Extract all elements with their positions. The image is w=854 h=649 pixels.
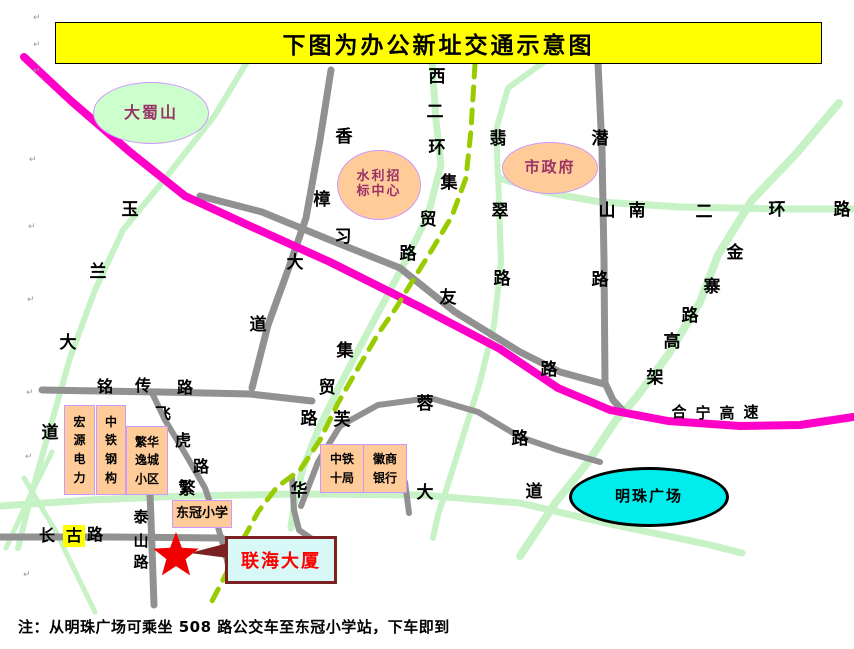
traffic-map: 香樟大道西二环集贸路翡翠路习友路潜山路南二环路金寨路高架玉兰大道铭传路飞虎路集贸… xyxy=(0,0,854,649)
map-note-text: 注：从明珠广场可乘坐 508 路公交车至东冠小学站，下车即到 xyxy=(18,618,450,636)
destination-label: 联海大厦 xyxy=(241,547,321,573)
destination-marker-layer xyxy=(0,0,854,649)
map-title: 下图为办公新址交通示意图 xyxy=(55,22,822,64)
map-note: 注：从明珠广场可乘坐 508 路公交车至东冠小学站，下车即到 xyxy=(18,616,450,637)
destination-star-icon xyxy=(153,532,199,575)
destination-callout: 联海大厦 xyxy=(225,536,337,584)
map-title-text: 下图为办公新址交通示意图 xyxy=(283,26,595,60)
